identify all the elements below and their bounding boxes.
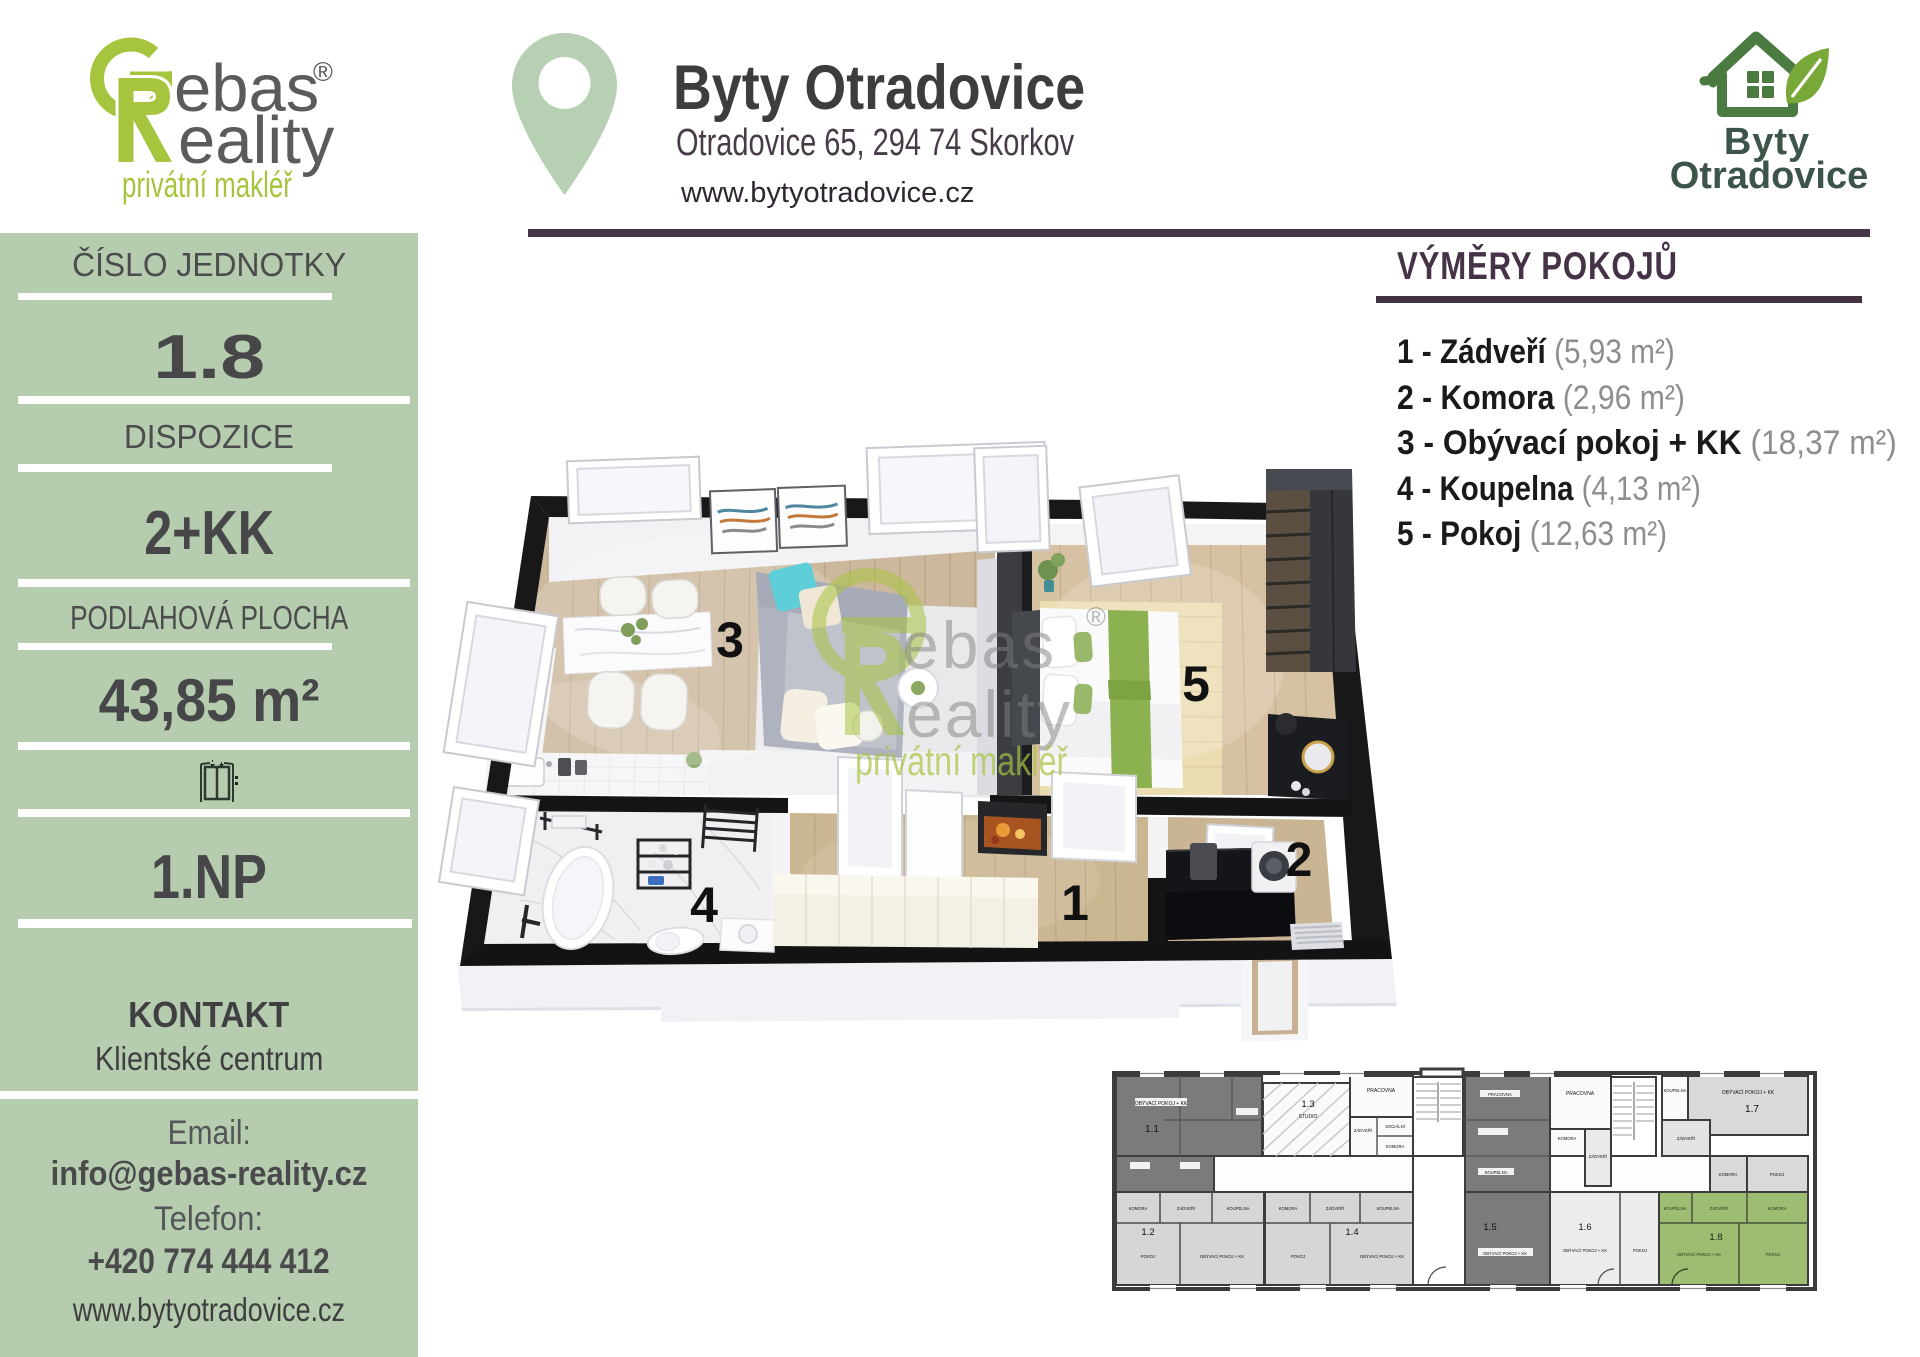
svg-text:ZÁDVEŘÍ: ZÁDVEŘÍ bbox=[1354, 1128, 1373, 1133]
svg-text:SOCIÁLNÍ: SOCIÁLNÍ bbox=[1385, 1124, 1405, 1129]
svg-text:KOUPELNA: KOUPELNA bbox=[1377, 1206, 1400, 1211]
svg-text:1.4: 1.4 bbox=[1345, 1227, 1358, 1238]
svg-text:5: 5 bbox=[1182, 656, 1210, 712]
svg-text:KOMORA: KOMORA bbox=[1129, 1206, 1148, 1211]
svg-text:1.6: 1.6 bbox=[1578, 1222, 1591, 1233]
svg-text:privátní makléř: privátní makléř bbox=[855, 738, 1068, 783]
svg-text:1.1: 1.1 bbox=[1145, 1124, 1159, 1135]
svg-text:1.7: 1.7 bbox=[1745, 1104, 1759, 1115]
svg-text:2: 2 bbox=[1286, 834, 1313, 887]
svg-text:OBÝVACÍ POKOJ + KK: OBÝVACÍ POKOJ + KK bbox=[1483, 1251, 1527, 1256]
svg-text:1.8: 1.8 bbox=[1709, 1232, 1722, 1243]
svg-text:KOMORA: KOMORA bbox=[1768, 1206, 1787, 1211]
svg-text:POKOJ: POKOJ bbox=[1291, 1254, 1305, 1259]
svg-text:KOMORA: KOMORA bbox=[1279, 1206, 1298, 1211]
svg-text:ZÁDVEŘÍ: ZÁDVEŘÍ bbox=[1710, 1206, 1729, 1211]
svg-text:KOMORA: KOMORA bbox=[1719, 1172, 1738, 1177]
svg-text:OBÝVACÍ POKOJ + KK: OBÝVACÍ POKOJ + KK bbox=[1200, 1254, 1244, 1259]
svg-text:4: 4 bbox=[690, 877, 718, 933]
svg-text:KOMORA: KOMORA bbox=[1558, 1136, 1577, 1141]
svg-text:OBÝVACÍ POKOJ + KK: OBÝVACÍ POKOJ + KK bbox=[1135, 1100, 1188, 1107]
svg-text:OBÝVACÍ POKOJ + KK: OBÝVACÍ POKOJ + KK bbox=[1722, 1089, 1775, 1096]
svg-text:ZÁDVEŘÍ: ZÁDVEŘÍ bbox=[1589, 1154, 1608, 1159]
svg-text:Otradovice: Otradovice bbox=[1670, 155, 1869, 197]
svg-text:ebas: ebas bbox=[902, 608, 1057, 682]
svg-text:ZÁDVEŘÍ: ZÁDVEŘÍ bbox=[1177, 1206, 1196, 1211]
svg-text:KOUPELNA: KOUPELNA bbox=[1227, 1206, 1250, 1211]
svg-text:KOUPELNA: KOUPELNA bbox=[1485, 1170, 1508, 1175]
svg-text:POKOJ: POKOJ bbox=[1770, 1172, 1784, 1177]
svg-text:PRACOVNA: PRACOVNA bbox=[1566, 1091, 1595, 1097]
svg-text:OBÝVACÍ POKOJ + KK: OBÝVACÍ POKOJ + KK bbox=[1677, 1252, 1721, 1257]
svg-text:PRACOVNA: PRACOVNA bbox=[1367, 1088, 1396, 1094]
svg-text:KOMORA: KOMORA bbox=[1386, 1144, 1405, 1149]
svg-text:1.5: 1.5 bbox=[1483, 1222, 1496, 1233]
svg-text:POKOJ: POKOJ bbox=[1633, 1248, 1647, 1253]
svg-text:3: 3 bbox=[716, 612, 744, 668]
svg-text:1.3: 1.3 bbox=[1301, 1099, 1314, 1110]
svg-text:POKOJ: POKOJ bbox=[1766, 1252, 1780, 1257]
svg-text:privátní makléř: privátní makléř bbox=[122, 165, 292, 205]
svg-text:KOUPELNA: KOUPELNA bbox=[1664, 1206, 1687, 1211]
svg-text:OBÝVACÍ POKOJ + KK: OBÝVACÍ POKOJ + KK bbox=[1360, 1254, 1404, 1259]
svg-text:1.2: 1.2 bbox=[1141, 1227, 1154, 1238]
svg-text:®: ® bbox=[313, 57, 333, 87]
svg-text:POKOJ: POKOJ bbox=[1141, 1254, 1155, 1259]
svg-text:KOUPELNA: KOUPELNA bbox=[1664, 1088, 1687, 1093]
svg-text:1: 1 bbox=[1061, 875, 1089, 931]
svg-text:ZÁDVEŘÍ: ZÁDVEŘÍ bbox=[1677, 1136, 1696, 1141]
svg-text:ZÁDVEŘÍ: ZÁDVEŘÍ bbox=[1326, 1206, 1345, 1211]
svg-text:®: ® bbox=[1086, 602, 1106, 632]
svg-text:STUDIO: STUDIO bbox=[1299, 1114, 1318, 1120]
svg-text:OBÝVACÍ POKOJ + KK: OBÝVACÍ POKOJ + KK bbox=[1563, 1248, 1607, 1253]
svg-text:PRACOVNA: PRACOVNA bbox=[1488, 1092, 1512, 1097]
